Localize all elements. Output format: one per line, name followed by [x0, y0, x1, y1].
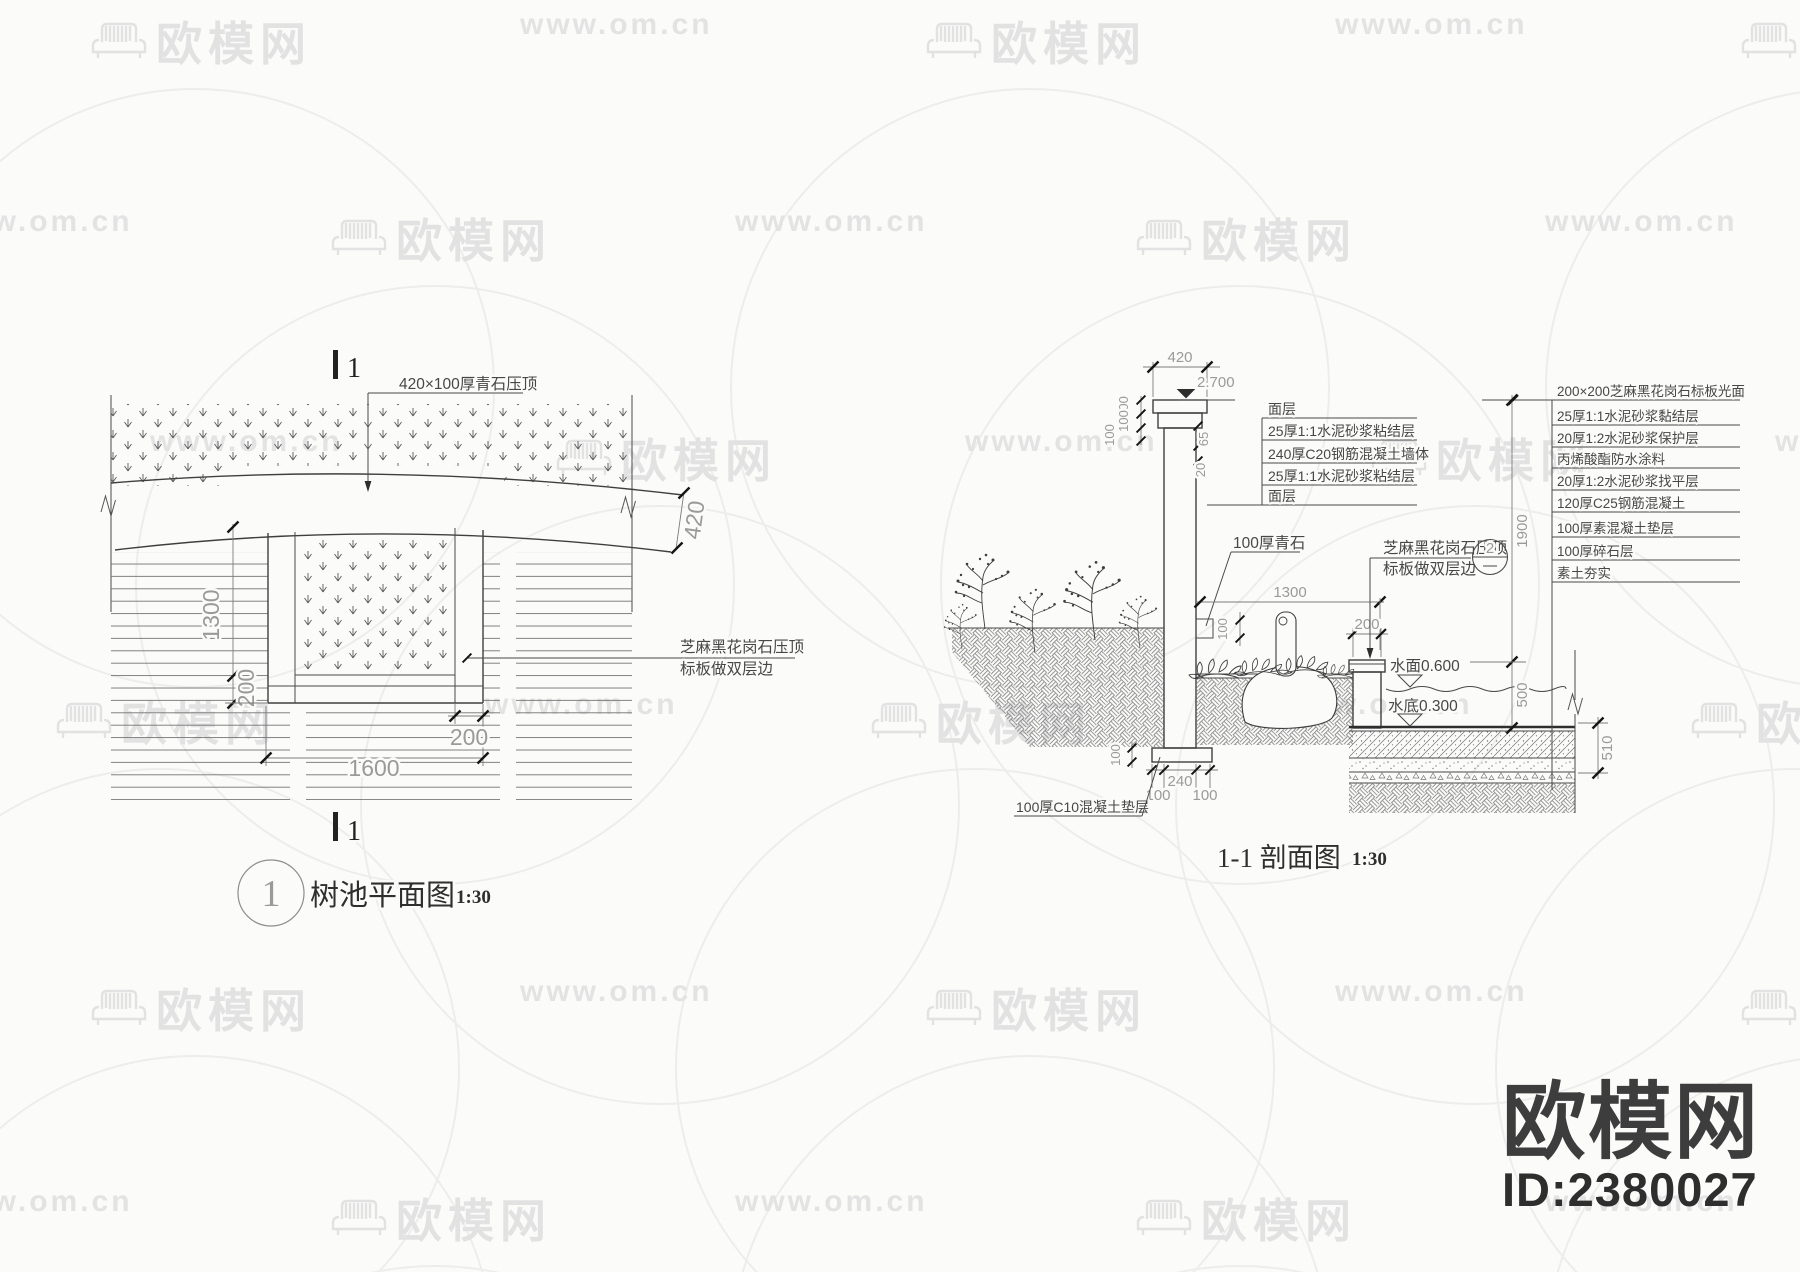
plan-tree-pool	[268, 528, 483, 703]
svg-text:素土夯实: 素土夯实	[1557, 566, 1611, 581]
svg-text:20厚1:2水泥砂浆找平层: 20厚1:2水泥砂浆找平层	[1557, 474, 1699, 489]
floor-layer-callout: 200×200芝麻黑花岗石标板光面 25厚1:1水泥砂浆黏结层 20厚1:2水泥…	[1482, 384, 1745, 790]
brand-name: 欧模网	[1502, 1080, 1760, 1164]
section-view: 420 2.700 100 100 100 65 20	[944, 349, 1745, 873]
plan-title-scale: 1:30	[456, 887, 491, 908]
dim-label: 100	[1192, 787, 1217, 804]
svg-text:2: 2	[1486, 540, 1494, 557]
svg-text:面层: 面层	[1268, 488, 1296, 504]
dim-label: 200	[233, 669, 259, 707]
svg-text:25厚1:1水泥砂浆黏结层: 25厚1:1水泥砂浆黏结层	[1557, 409, 1699, 424]
plan-title: 1 树池平面图 1:30	[238, 860, 491, 926]
svg-text:1: 1	[347, 816, 361, 847]
detail-bubble: 2	[1473, 540, 1509, 575]
water-line	[1386, 687, 1566, 692]
plan-view: 420×100厚青石压顶 420 1300 200 1600	[101, 350, 804, 926]
dim-label: 510	[1599, 735, 1616, 760]
plan-granite-note-2: 标板做双层边	[680, 660, 774, 678]
svg-text:240厚C20钢筋混凝土墙体: 240厚C20钢筋混凝土墙体	[1268, 446, 1429, 462]
brand-id: ID:2380027	[1502, 1166, 1760, 1213]
plan-paving-hatch-right	[483, 552, 632, 800]
dim-label: 200	[1354, 616, 1379, 633]
dim-label: 100	[1108, 744, 1123, 766]
water-top-label: 水面0.600	[1390, 657, 1460, 675]
plan-title-text: 树池平面图	[310, 879, 455, 912]
section-title: 1-1 剖面图 1:30	[1217, 843, 1387, 873]
dim-label: 1900	[1514, 514, 1531, 547]
dim-label: 420	[679, 499, 710, 541]
dim-label: 100	[1145, 787, 1170, 804]
svg-text:20厚1:2水泥砂浆保护层: 20厚1:2水泥砂浆保护层	[1557, 431, 1699, 446]
plan-granite-note-1: 芝麻黑花岗石压顶	[680, 638, 804, 656]
dim-label: 100	[1102, 424, 1117, 446]
svg-text:面层: 面层	[1268, 401, 1296, 417]
section-cut-mark-top: 1	[333, 350, 361, 384]
dim-label: 420	[1167, 349, 1192, 366]
section-title-text: 1-1 剖面图	[1217, 843, 1341, 873]
svg-text:25厚1:1水泥砂浆粘结层: 25厚1:1水泥砂浆粘结层	[1268, 423, 1415, 439]
svg-text:丙烯酸酯防水涂料: 丙烯酸酯防水涂料	[1557, 452, 1665, 467]
bluestone-block	[1196, 619, 1213, 638]
cad-sheet: 欧模网www.om.cn 欧模网www.om.cn 欧模网www.om.cn	[0, 0, 1800, 1272]
svg-text:120厚C25钢筋混凝土: 120厚C25钢筋混凝土	[1557, 495, 1685, 511]
dim-label: 1300	[1273, 584, 1306, 601]
bluestone-note: 100厚青石	[1233, 534, 1305, 552]
svg-text:1: 1	[347, 353, 361, 384]
section-wall-footing	[1152, 748, 1212, 762]
dim-label: 500	[1514, 682, 1531, 707]
plan-title-number: 1	[262, 873, 281, 915]
svg-text:100厚碎石层: 100厚碎石层	[1557, 544, 1634, 559]
plan-planting-band	[111, 404, 632, 466]
dim-label: 240	[1167, 773, 1192, 790]
section-granite-note-2: 标板做双层边	[1383, 560, 1477, 578]
svg-text:25厚1:1水泥砂浆粘结层: 25厚1:1水泥砂浆粘结层	[1268, 468, 1415, 484]
plan-coping-note: 420×100厚青石压顶	[399, 375, 537, 393]
dim-label: 200	[450, 724, 488, 750]
elevation-label: 2.700	[1197, 374, 1235, 391]
wall-layer-callout: 面层 25厚1:1水泥砂浆粘结层 240厚C20钢筋混凝土墙体 25厚1:1水泥…	[1207, 401, 1429, 505]
brand-watermark: 欧模网 ID:2380027	[1502, 1080, 1760, 1213]
footing-note: 100厚C10混凝土垫层	[1016, 799, 1149, 815]
plan-pool-planting	[300, 538, 450, 670]
dim-label: 1600	[348, 755, 399, 781]
dim-label: 65	[1196, 432, 1211, 446]
dim-label: 100	[1215, 618, 1230, 640]
dim-label: 20	[1193, 463, 1208, 477]
svg-text:200×200芝麻黑花岗石标板光面: 200×200芝麻黑花岗石标板光面	[1557, 384, 1745, 399]
water-bottom-label: 水底0.300	[1388, 697, 1458, 715]
svg-text:100厚素混凝土垫层: 100厚素混凝土垫层	[1557, 521, 1674, 536]
section-title-scale: 1:30	[1352, 849, 1387, 870]
section-planter-soil	[952, 628, 1164, 747]
dim-label: 1300	[198, 589, 224, 640]
section-pool	[1349, 650, 1583, 813]
dim-label: 100	[1116, 410, 1131, 432]
section-cut-mark-bottom: 1	[333, 812, 361, 847]
